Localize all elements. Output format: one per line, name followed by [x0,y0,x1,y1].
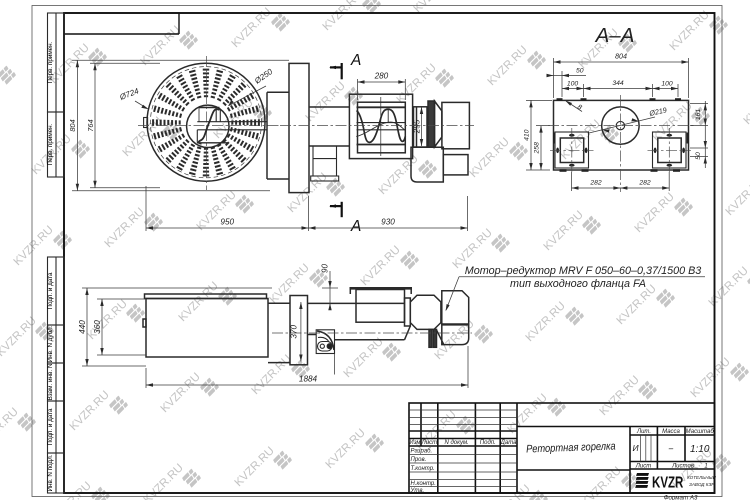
svg-text:KVZR: KVZR [652,473,683,491]
svg-text:Дата: Дата [500,440,517,446]
svg-text:1: 1 [704,463,707,469]
svg-text:50: 50 [695,152,702,160]
svg-text:1884: 1884 [299,375,318,384]
svg-text:Н.контр.: Н.контр. [411,481,436,487]
svg-text:Подп. и дата: Подп. и дата [47,272,54,310]
svg-text:И: И [632,443,639,453]
svg-text:Инв. N дубл.: Инв. N дубл. [46,325,54,362]
svg-text:280: 280 [374,72,389,81]
svg-text:930: 930 [381,218,395,227]
svg-text:161: 161 [695,109,702,121]
svg-text:410: 410 [524,129,531,141]
svg-text:Пров.: Пров. [411,457,427,463]
svg-text:370: 370 [290,324,299,338]
svg-text:ЗАВОД КЗР: ЗАВОД КЗР [689,482,715,487]
svg-text:Мотор–редуктор MRV F 050–60–0,: Мотор–редуктор MRV F 050–60–0,37/1500 В3 [465,265,702,277]
svg-text:804: 804 [68,119,77,131]
svg-text:A: A [350,218,361,235]
svg-text:258: 258 [534,142,541,155]
svg-text:804: 804 [615,52,627,61]
svg-text:282: 282 [638,180,651,187]
svg-text:764: 764 [86,119,95,131]
svg-text:Перв. примен.: Перв. примен. [47,41,54,83]
svg-text:Перв. примен.: Перв. примен. [47,123,54,165]
svg-text:440: 440 [78,320,87,334]
svg-text:360: 360 [93,320,102,334]
svg-text:Масса: Масса [662,429,680,435]
svg-text:Т.контр.: Т.контр. [411,466,435,472]
svg-text:тип выходного фланца FA: тип выходного фланца FA [510,278,646,290]
svg-text:Лист: Лист [421,440,437,446]
svg-text:282: 282 [589,180,602,187]
svg-text:Масштаб: Масштаб [686,429,715,435]
svg-text:Подп. и дата: Подп. и дата [47,408,54,446]
svg-text:100: 100 [661,81,673,88]
svg-text:90: 90 [321,264,330,273]
svg-text:344: 344 [612,80,624,87]
svg-text:100: 100 [567,81,579,88]
svg-text:Лит.: Лит. [636,429,651,435]
svg-text:950: 950 [220,218,234,227]
svg-text:Утв.: Утв. [410,488,425,494]
svg-text:Формат А3: Формат А3 [664,495,698,500]
svg-text:Лист: Лист [635,463,651,469]
svg-text:A: A [350,52,361,69]
svg-text:Инв. N подл.: Инв. N подл. [47,454,54,491]
svg-text:–: – [668,444,674,453]
svg-text:Подп.: Подп. [480,440,496,446]
svg-text:295: 295 [412,119,421,134]
svg-text:КОТЕЛЬНЫЙ: КОТЕЛЬНЫЙ [687,473,717,480]
svg-text:Изм: Изм [409,440,420,446]
svg-text:Взам. инв. N: Взам. инв. N [47,363,54,400]
svg-text:N докум.: N докум. [444,440,468,446]
svg-text:A–A: A–A [594,24,635,47]
svg-text:1:10: 1:10 [690,444,710,455]
svg-text:Разраб.: Разраб. [411,449,433,455]
svg-text:Листов: Листов [671,463,694,469]
svg-text:50: 50 [576,68,584,75]
